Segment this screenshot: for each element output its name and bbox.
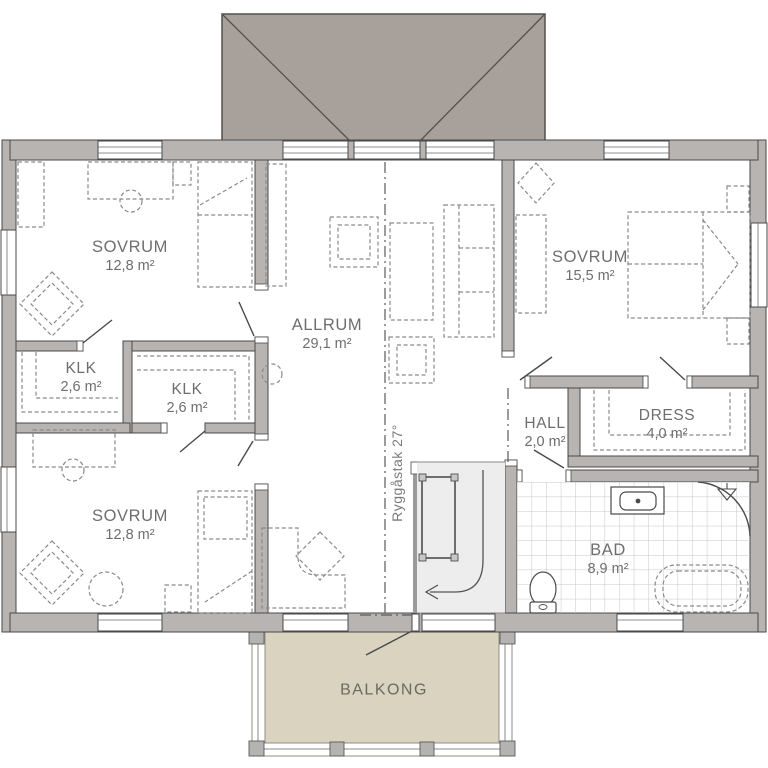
tv-bench	[266, 164, 286, 286]
pillow	[204, 497, 247, 539]
armchair	[389, 337, 434, 383]
room-label-sovrum-e: SOVRUM 15,5 m²	[552, 248, 628, 286]
bed-single	[198, 162, 252, 287]
room-label-dress: DRESS 4,0 m²	[639, 406, 695, 444]
bathroom-fixtures	[517, 482, 750, 613]
room-label-klk-west: KLK 2,6 m²	[60, 359, 101, 397]
room-label-allrum: ALLRUM 29,1 m²	[292, 316, 363, 354]
desk-chair	[62, 459, 84, 481]
armchair	[20, 272, 84, 336]
bookcase	[18, 162, 44, 227]
sink-faucet	[636, 499, 641, 504]
sofa	[444, 205, 494, 337]
round-table	[89, 572, 123, 606]
room-label-klk-center: KLK 2,6 m²	[166, 380, 207, 418]
pillow	[727, 186, 749, 212]
room-label-sovrum-sw: SOVRUM 12,8 m²	[92, 507, 168, 545]
dresser	[516, 215, 546, 313]
toilet-tank	[530, 602, 556, 613]
armchair	[518, 163, 554, 203]
floor-plan-drawing	[0, 0, 768, 768]
floor-plan: SOVRUM 12,8 m² ALLRUM 29,1 m² SOVRUM 15,…	[0, 0, 768, 768]
corner-desk	[262, 528, 345, 608]
room-label-bad: BAD 8,9 m²	[587, 541, 628, 579]
room-label-sovrum-nw: SOVRUM 12,8 m²	[92, 238, 168, 276]
coffee-table	[390, 223, 433, 320]
bed-single	[198, 491, 252, 613]
side-table	[165, 585, 191, 612]
pillow	[727, 318, 749, 344]
staircase	[417, 462, 505, 613]
roof-shape	[222, 14, 545, 141]
ridge-annotation: Ryggåstak 27°	[389, 424, 405, 522]
toilet-bowl	[530, 572, 556, 606]
bed-double	[628, 212, 750, 318]
desk-chair	[120, 190, 142, 212]
desk	[88, 162, 173, 199]
room-label-balkong: BALKONG	[340, 681, 428, 700]
room-label-hall: HALL 2,0 m²	[524, 414, 565, 452]
armchair	[20, 541, 84, 605]
desk-chair	[296, 532, 344, 580]
desk	[33, 430, 115, 467]
